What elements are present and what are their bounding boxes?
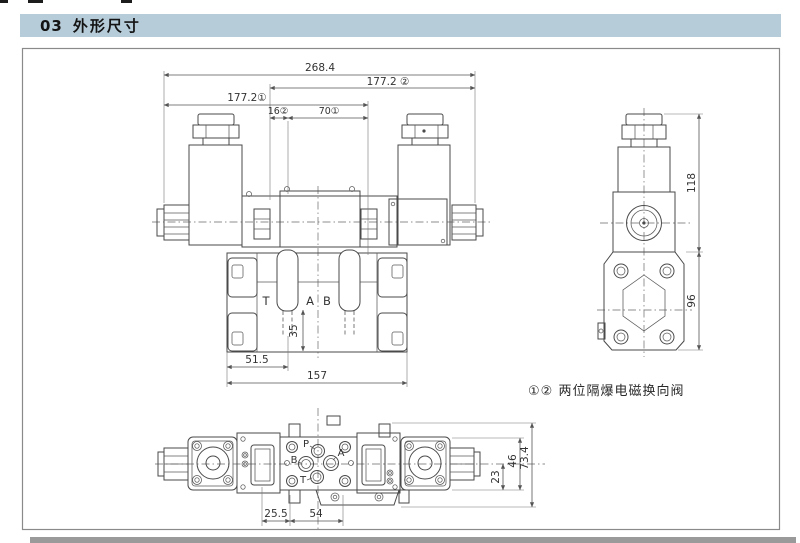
dim-25-5: 25.5 — [264, 508, 287, 520]
front-view-dimensions: 268.4 177.2 ② 177.2① 16② 70① T A B 35 51… — [164, 62, 475, 387]
port-slot-right — [339, 250, 360, 311]
bottom-view: P A B T — [155, 408, 545, 532]
dim-35: 35 — [288, 324, 300, 337]
bottom-port-label-t: T — [299, 475, 307, 486]
bottom-port-label-a: A — [338, 448, 345, 459]
catalog-page: 03 外形尺寸 — [0, 0, 800, 543]
left-cable-gland-icon — [193, 114, 239, 145]
port-t-hole — [311, 471, 324, 484]
right-cable-gland-icon — [402, 114, 448, 145]
side-lower-body — [598, 252, 684, 350]
valve-body — [242, 187, 397, 248]
bottom-port-label-b: B — [291, 455, 298, 466]
dim-16: 16② — [268, 106, 289, 117]
port-label-b: B — [323, 294, 331, 308]
bottom-center-plate: P A B T — [280, 437, 357, 490]
dim-54: 54 — [309, 508, 323, 520]
side-solenoid-tube — [618, 147, 670, 192]
bottom-right-end-cap — [401, 437, 450, 490]
bottom-left-end-cap — [188, 437, 237, 490]
right-connector-icon — [452, 205, 483, 240]
port-a-hole — [324, 456, 339, 471]
port-label-a: A — [306, 294, 314, 308]
figure-caption: ①② 两位隔爆电磁换向阀 — [528, 383, 684, 399]
front-view: 268.4 177.2 ② 177.2① 16② 70① T A B 35 51… — [152, 62, 490, 387]
side-view: 118 96 — [597, 108, 703, 357]
page-bottom-edge — [30, 537, 796, 543]
dimension-drawing: 268.4 177.2 ② 177.2① 16② 70① T A B 35 51… — [0, 0, 800, 543]
bottom-right-block — [357, 433, 400, 493]
right-solenoid-coil — [398, 145, 450, 245]
subplate — [227, 250, 407, 352]
dim-73-4: 73.4 — [519, 446, 531, 470]
bottom-tabs — [289, 416, 409, 505]
port-slot-left — [277, 250, 298, 311]
bottom-right-connector-icon — [450, 448, 480, 480]
dim-70: 70① — [319, 106, 340, 117]
dim-96: 96 — [686, 294, 698, 308]
dim-total-width: 268.4 — [305, 62, 335, 74]
port-label-t: T — [261, 294, 270, 308]
left-connector-icon — [157, 205, 189, 240]
dim-157: 157 — [307, 370, 327, 382]
dim-51-5: 51.5 — [245, 354, 268, 366]
bottom-left-block — [237, 433, 280, 493]
dim-46: 46 — [507, 454, 519, 468]
dim-width-1: 177.2① — [227, 92, 266, 104]
left-solenoid-coil — [189, 145, 242, 245]
dim-23: 23 — [490, 470, 502, 483]
dim-width-2: 177.2 ② — [367, 76, 410, 88]
dim-118: 118 — [686, 173, 698, 193]
bottom-port-label-p: P — [303, 439, 309, 450]
